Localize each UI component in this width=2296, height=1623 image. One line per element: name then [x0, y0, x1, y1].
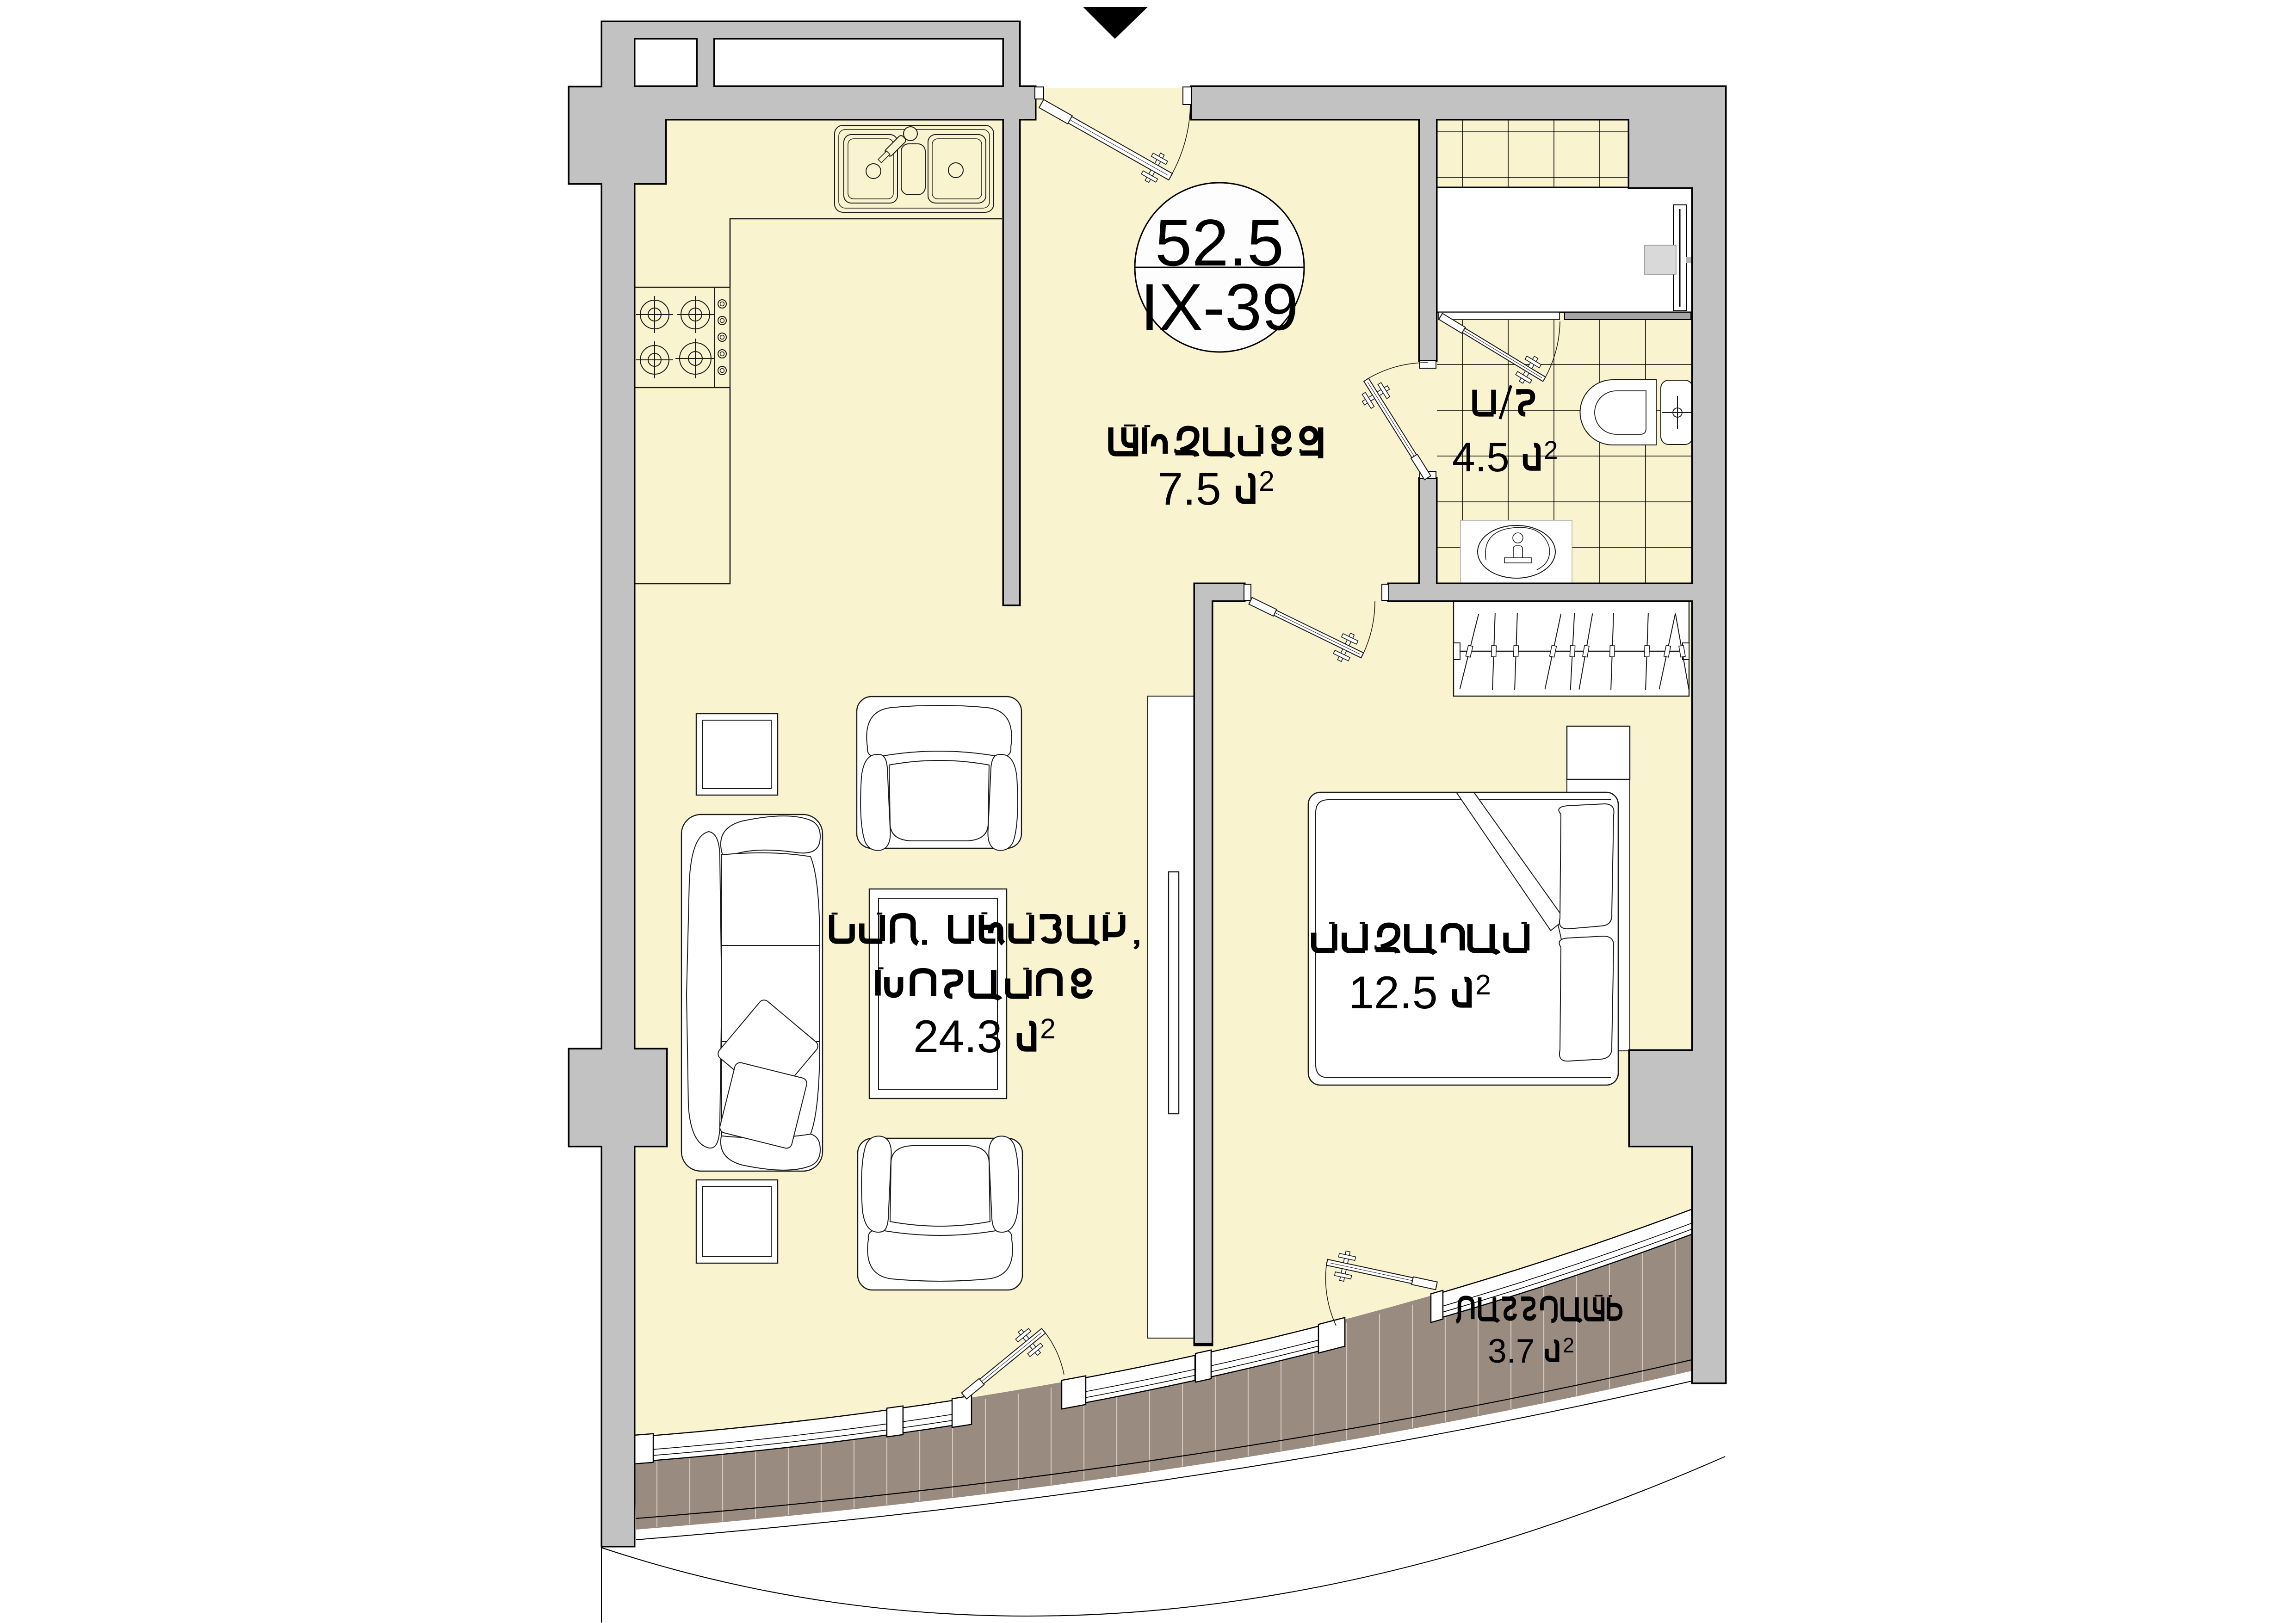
svg-text:2: 2	[1563, 1333, 1574, 1357]
svg-text:2: 2	[1544, 436, 1558, 464]
svg-text:2: 2	[1040, 1013, 1056, 1044]
svg-text:24.3: 24.3	[913, 1011, 1003, 1062]
svg-text:2: 2	[1259, 465, 1275, 497]
svg-text:IX-39: IX-39	[1140, 271, 1299, 344]
svg-text:52.5: 52.5	[1155, 206, 1284, 280]
svg-text:12.5: 12.5	[1349, 967, 1438, 1018]
svg-text:4.5: 4.5	[1452, 434, 1510, 480]
svg-text:3.7: 3.7	[1488, 1333, 1535, 1370]
svg-text:7.5: 7.5	[1157, 463, 1221, 514]
svg-text:2: 2	[1475, 969, 1491, 1000]
